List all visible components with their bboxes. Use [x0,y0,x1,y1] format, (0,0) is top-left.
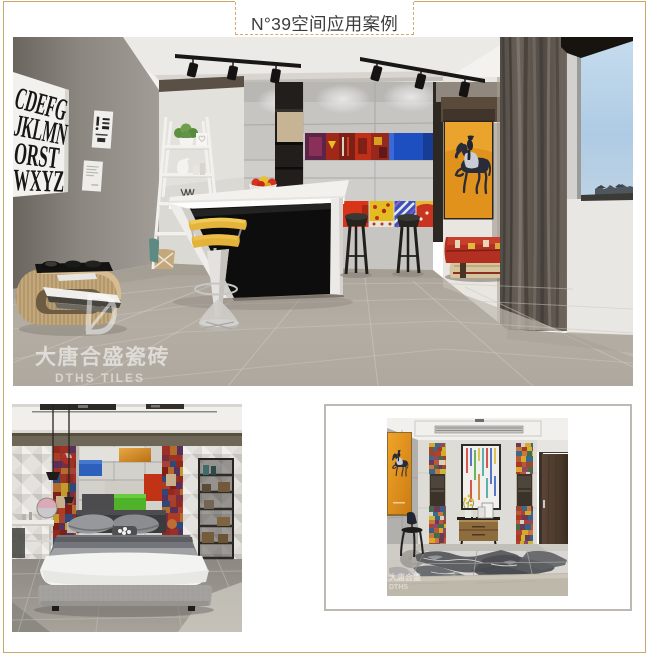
svg-text:大唐合盛: 大唐合盛 [389,572,421,582]
svg-text:DTHS: DTHS [389,584,408,591]
svg-text:大唐合盛瓷砖: 大唐合盛瓷砖 [35,345,170,369]
svg-text:DTHS TILES: DTHS TILES [55,371,145,385]
